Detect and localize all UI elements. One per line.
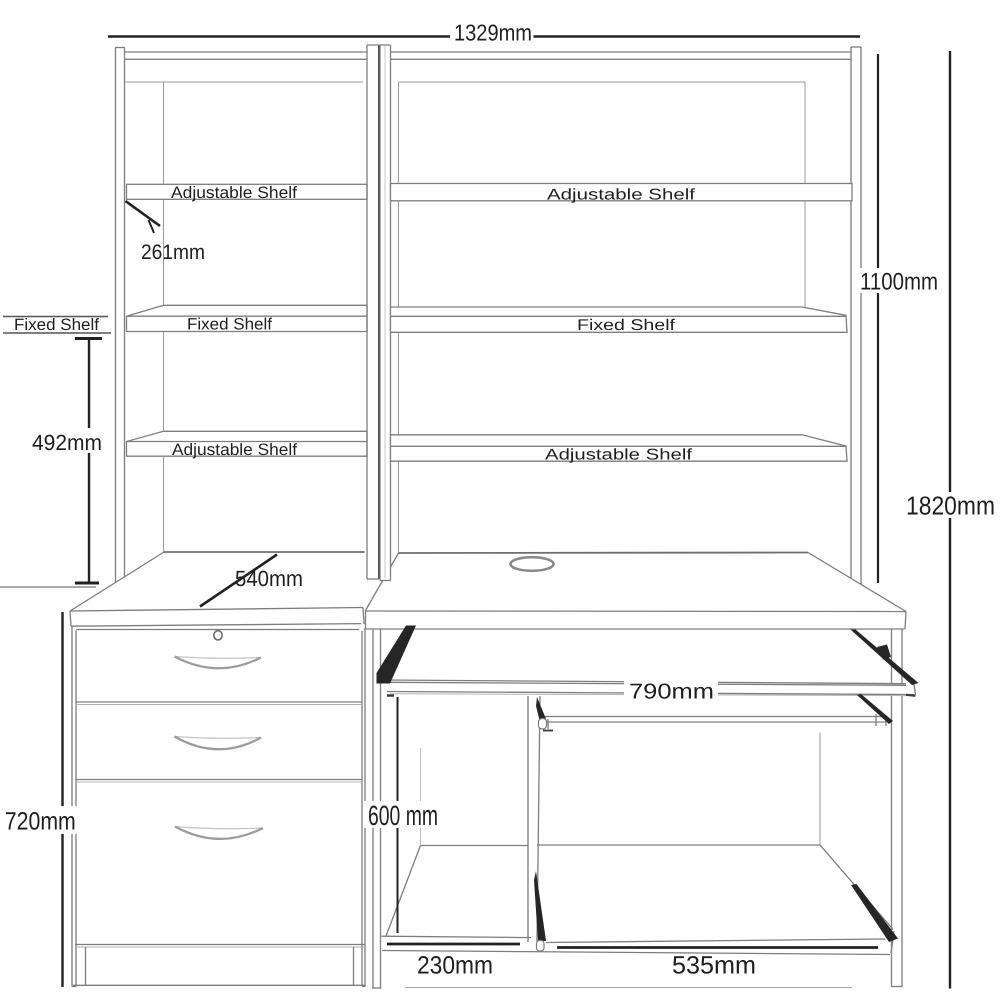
- svg-text:Adjustable Shelf: Adjustable Shelf: [172, 441, 297, 459]
- svg-text:Fixed Shelf: Fixed Shelf: [577, 317, 676, 334]
- svg-text:Fixed Shelf: Fixed Shelf: [187, 316, 272, 334]
- svg-text:790mm: 790mm: [629, 680, 714, 704]
- svg-text:600 mm: 600 mm: [368, 800, 438, 831]
- svg-text:535mm: 535mm: [672, 952, 756, 980]
- svg-text:492mm: 492mm: [32, 430, 102, 455]
- svg-text:Fixed Shelf: Fixed Shelf: [14, 316, 99, 334]
- svg-text:Adjustable Shelf: Adjustable Shelf: [545, 447, 693, 464]
- svg-text:720mm: 720mm: [5, 808, 76, 836]
- svg-text:1100mm: 1100mm: [860, 269, 938, 296]
- svg-text:540mm: 540mm: [235, 566, 303, 591]
- svg-text:230mm: 230mm: [417, 952, 493, 980]
- svg-text:1329mm: 1329mm: [454, 20, 532, 46]
- svg-text:261mm: 261mm: [141, 241, 205, 264]
- svg-text:1820mm: 1820mm: [906, 491, 995, 521]
- svg-text:Adjustable Shelf: Adjustable Shelf: [547, 187, 696, 204]
- svg-text:Adjustable Shelf: Adjustable Shelf: [171, 184, 297, 202]
